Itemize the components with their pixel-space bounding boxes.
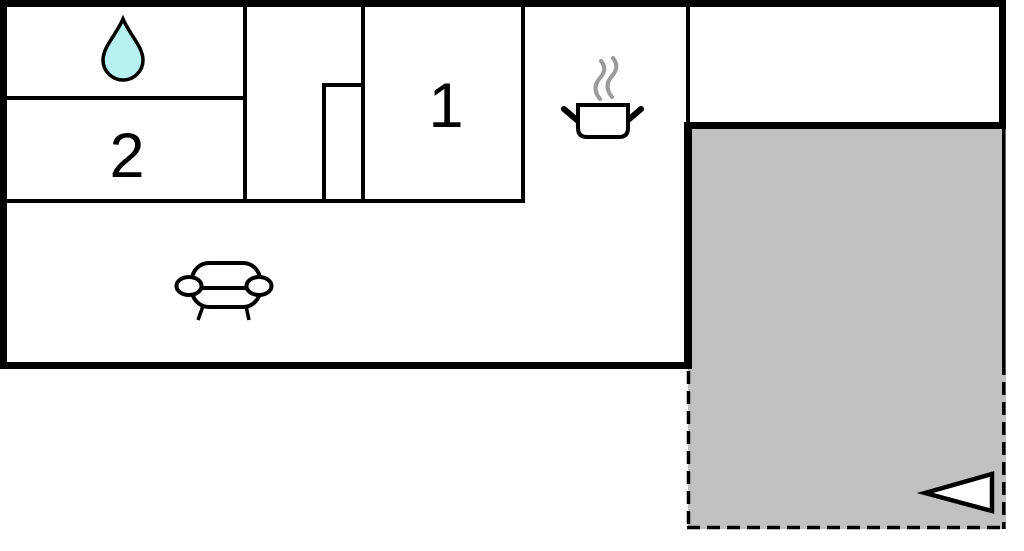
sofa-icon [177, 263, 272, 320]
pot-handle-left [564, 109, 578, 121]
terrace-right-wall [1002, 129, 1006, 362]
wall-kitchen-annex-divider [686, 0, 690, 122]
interior-walls [0, 0, 690, 203]
sofa-armrest-left [177, 277, 202, 295]
bedroom-1-label: 1 [428, 71, 463, 141]
wall-bathroom-bedroom2-divider [0, 96, 246, 100]
wall-bedroom2-hall-divider [243, 0, 247, 203]
steam-line-right [608, 58, 617, 97]
wall-annex-right [999, 0, 1006, 129]
wall-annex-bottom [688, 122, 1006, 129]
pot-body [578, 105, 628, 137]
floorplan-canvas: 2 1 [0, 0, 1024, 551]
closet [322, 83, 365, 203]
wall-bottom [0, 362, 692, 369]
floorplan-drawing: 2 1 [0, 0, 1024, 551]
cooking-pot-icon [564, 105, 641, 137]
steam-icon [596, 58, 617, 99]
wall-rooms-bottom [0, 199, 525, 203]
wall-bedroom1-right [521, 0, 525, 203]
steam-line-left [596, 61, 605, 99]
terrace-floor [688, 126, 1006, 529]
bedroom-2-label: 2 [109, 121, 144, 191]
closet-top-wall [322, 83, 365, 87]
closet-left-wall [322, 83, 326, 203]
wall-left [0, 0, 7, 369]
wall-hall-bedroom1-divider [361, 0, 365, 203]
terrace-area [687, 126, 1006, 529]
water-drop-icon [103, 19, 143, 80]
sofa-armrest-right [247, 277, 272, 295]
wall-building-right [684, 122, 692, 369]
wall-top [0, 0, 1006, 7]
sofa-leg-left [198, 306, 203, 320]
